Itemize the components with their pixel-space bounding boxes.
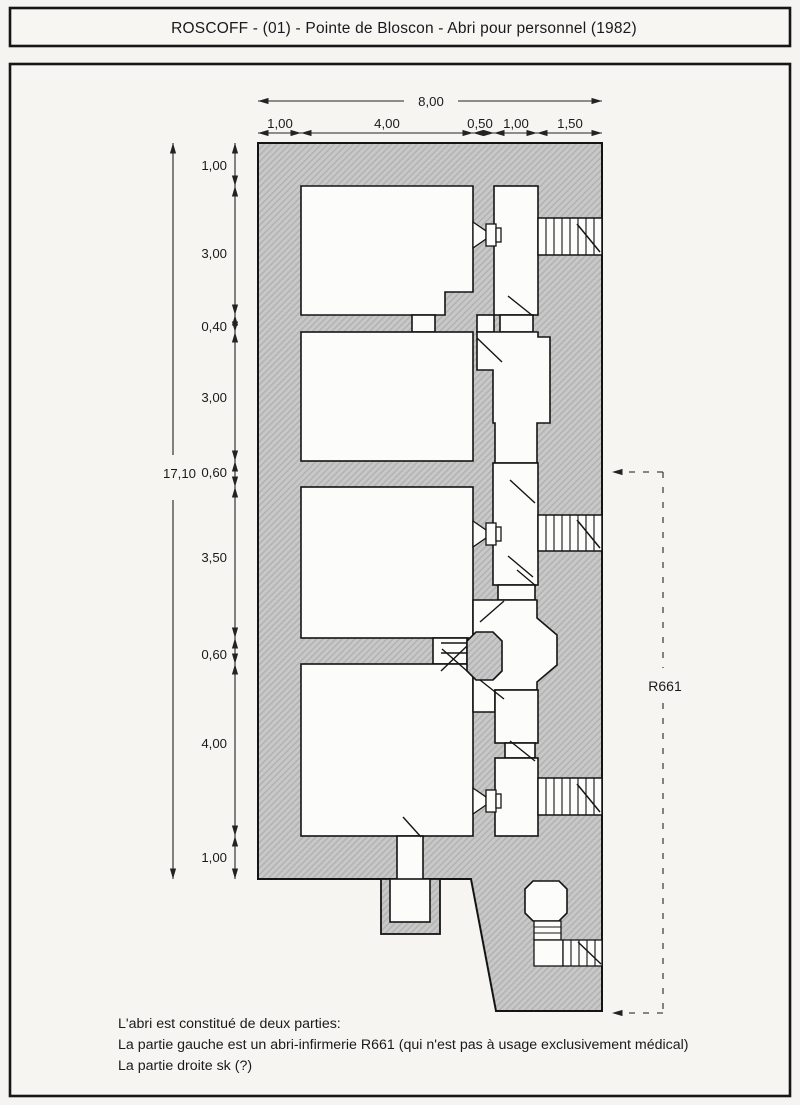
dim-left-seg: 3,50 — [201, 550, 227, 565]
airlock-connector-1 — [500, 315, 533, 332]
dim-left-seg: 1,00 — [201, 850, 227, 865]
entrance-interior — [390, 879, 430, 922]
dim-left-seg: 0,40 — [201, 319, 227, 334]
airlock-chamber-1 — [494, 186, 538, 315]
wall-niche — [477, 315, 494, 332]
room-1-2-opening — [412, 315, 435, 332]
room-4-exit-door — [397, 836, 423, 881]
dim-top-total: 8,00 — [418, 94, 444, 109]
airlock-connector-2 — [498, 585, 535, 600]
dim-top-seg: 4,00 — [374, 116, 400, 131]
caption-line-3: La partie droite sk (?) — [118, 1058, 252, 1074]
exit-landing — [534, 940, 563, 966]
caption-line-1: L'abri est constitué de deux parties: — [118, 1016, 341, 1032]
dim-left-seg: 3,00 — [201, 390, 227, 405]
staircase-top — [538, 218, 602, 255]
dim-left-seg: 4,00 — [201, 736, 227, 751]
exit-ladder — [534, 921, 561, 940]
dim-left-seg: 0,60 — [201, 465, 227, 480]
zone-label: R661 — [648, 678, 682, 694]
airlock-chamber-3 — [493, 463, 538, 585]
dim-left-seg: 1,00 — [201, 158, 227, 173]
dim-top-seg: 0,50 — [467, 116, 493, 131]
dim-left-seg: 3,00 — [201, 246, 227, 261]
staircase-middle — [538, 515, 602, 551]
airlock-connector-3 — [505, 743, 535, 758]
staircase-bottom — [538, 778, 602, 815]
dim-top-seg: 1,00 — [267, 116, 293, 131]
scanned-plan-page: ROSCOFF - (01) - Pointe de Bloscon - Abr… — [0, 0, 800, 1105]
dim-left-total: 17,10 — [163, 466, 196, 481]
exit-octagon — [525, 881, 567, 921]
floor-plan-drawing: ROSCOFF - (01) - Pointe de Bloscon - Abr… — [0, 0, 800, 1105]
dim-top-seg: 1,00 — [503, 116, 529, 131]
dim-left-seg: 0,60 — [201, 647, 227, 662]
dim-top-seg: 1,50 — [557, 116, 583, 131]
room-3 — [301, 487, 473, 638]
room-4 — [301, 664, 473, 836]
octagonal-pillar — [467, 632, 502, 680]
caption-line-2: La partie gauche est un abri-infirmerie … — [118, 1037, 689, 1053]
page-title: ROSCOFF - (01) - Pointe de Bloscon - Abr… — [171, 20, 637, 37]
room-2 — [301, 332, 473, 461]
exit-stair — [563, 940, 602, 966]
airlock-chamber-5 — [495, 690, 538, 743]
